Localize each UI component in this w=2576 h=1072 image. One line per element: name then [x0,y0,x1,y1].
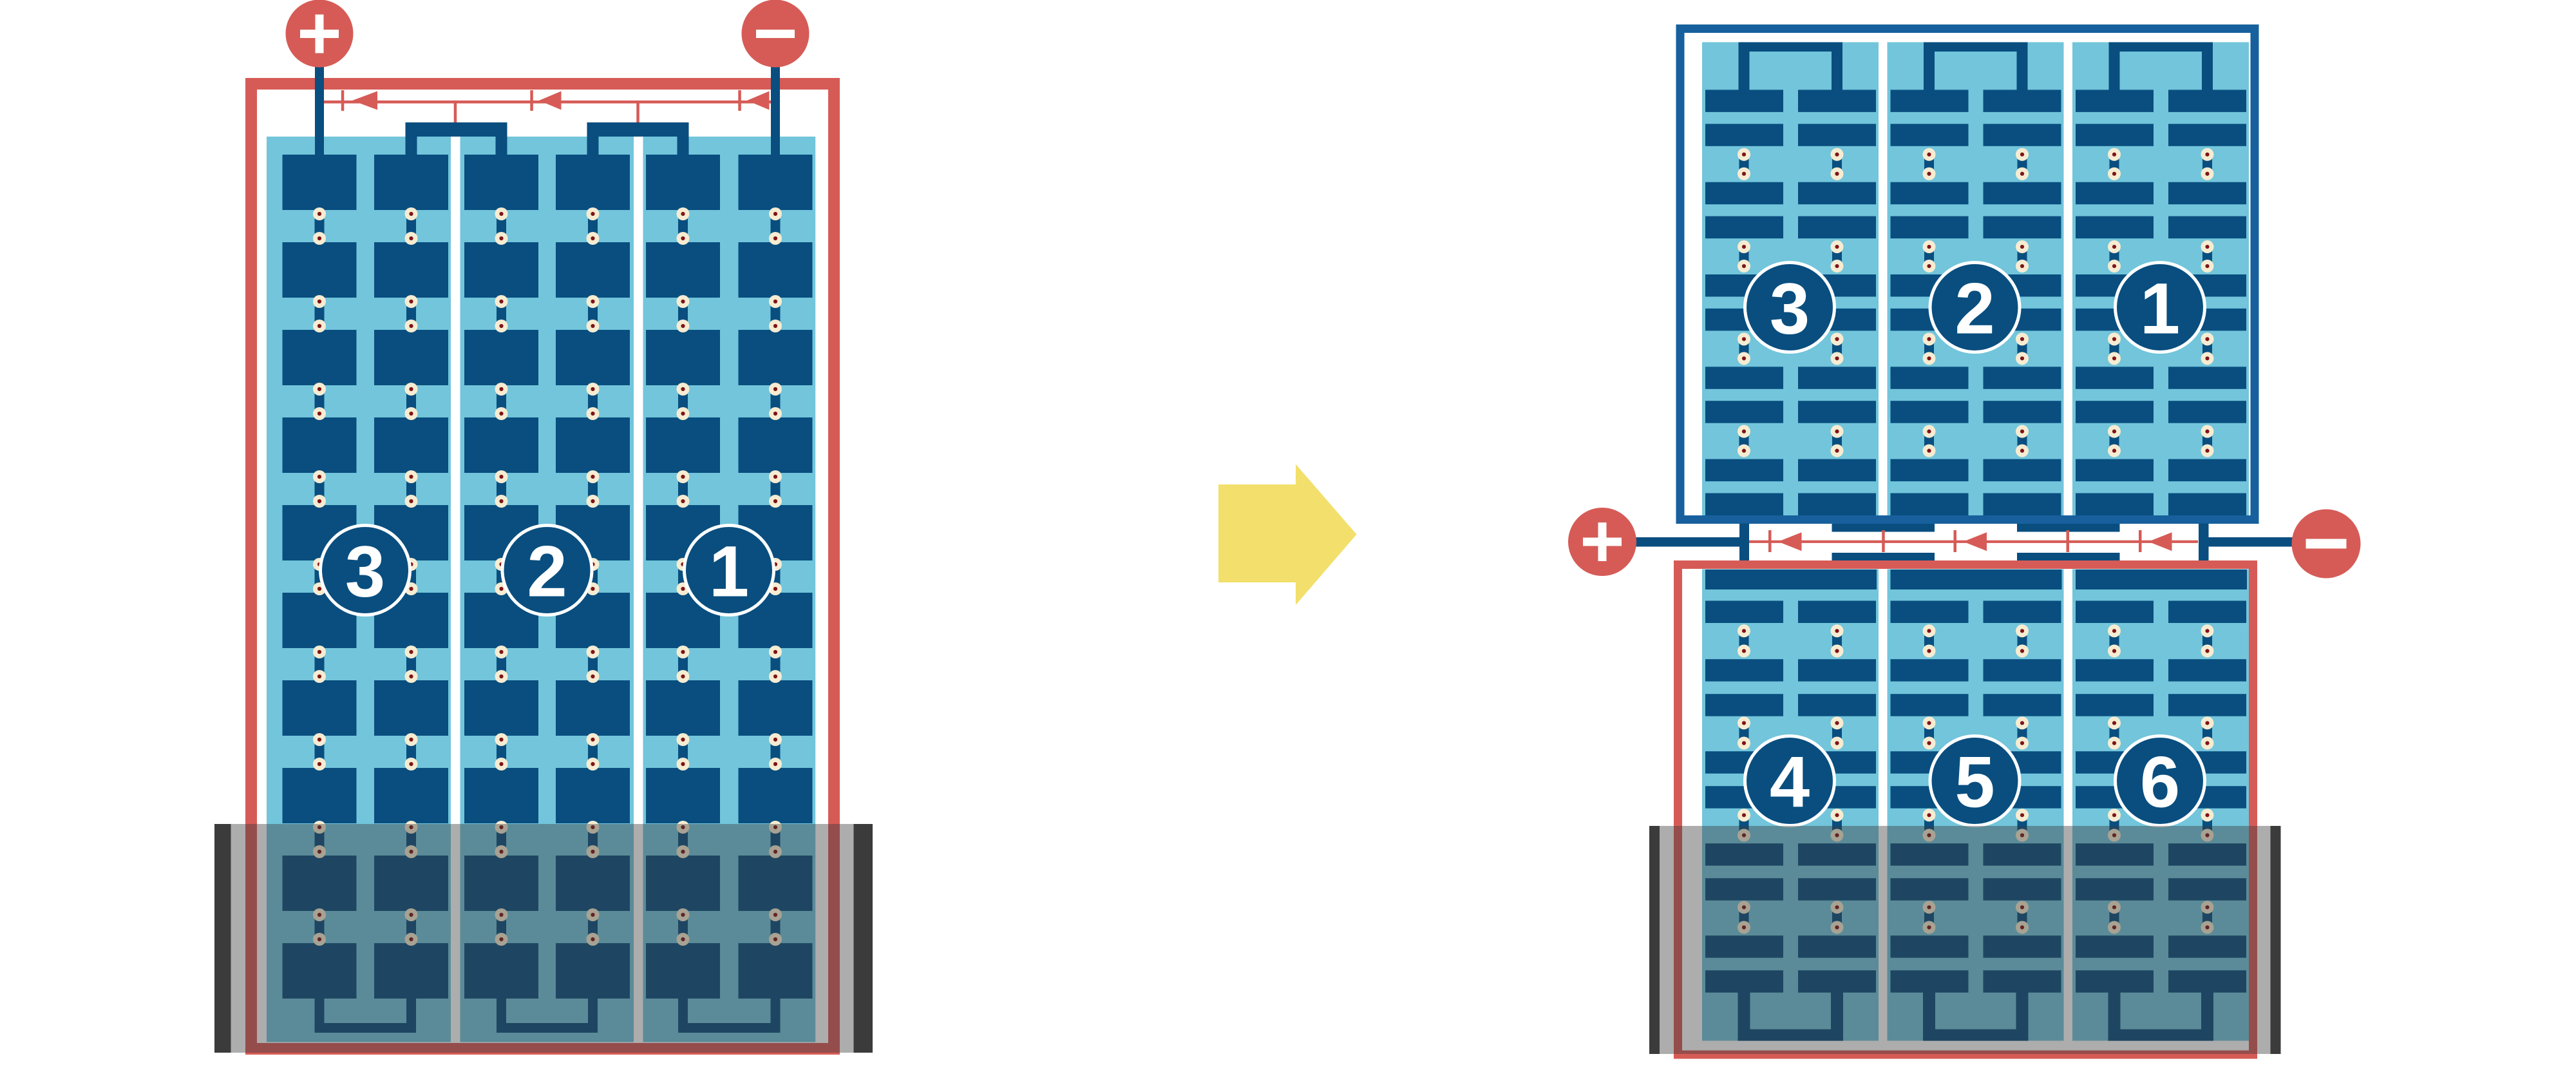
svg-text:2: 2 [527,531,567,612]
svg-text:1: 1 [2140,269,2180,349]
svg-text:5: 5 [1955,742,1994,823]
svg-text:3: 3 [1770,269,1810,349]
svg-text:3: 3 [345,531,385,612]
svg-text:6: 6 [2140,742,2180,823]
svg-text:4: 4 [1770,742,1810,823]
svg-text:1: 1 [709,531,749,612]
svg-text:2: 2 [1955,269,1994,349]
